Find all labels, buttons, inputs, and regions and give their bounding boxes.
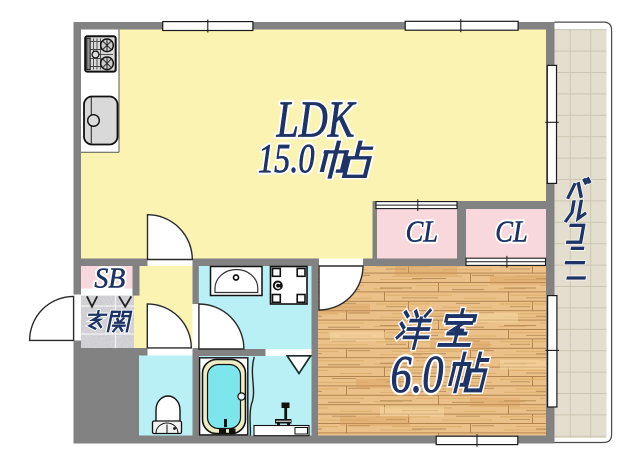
svg-text:15.0: 15.0 <box>258 136 315 182</box>
svg-text:SB: SB <box>94 263 125 295</box>
svg-text:CL: CL <box>406 216 438 249</box>
svg-text:CL: CL <box>495 216 527 249</box>
svg-text:6.0: 6.0 <box>391 345 444 404</box>
